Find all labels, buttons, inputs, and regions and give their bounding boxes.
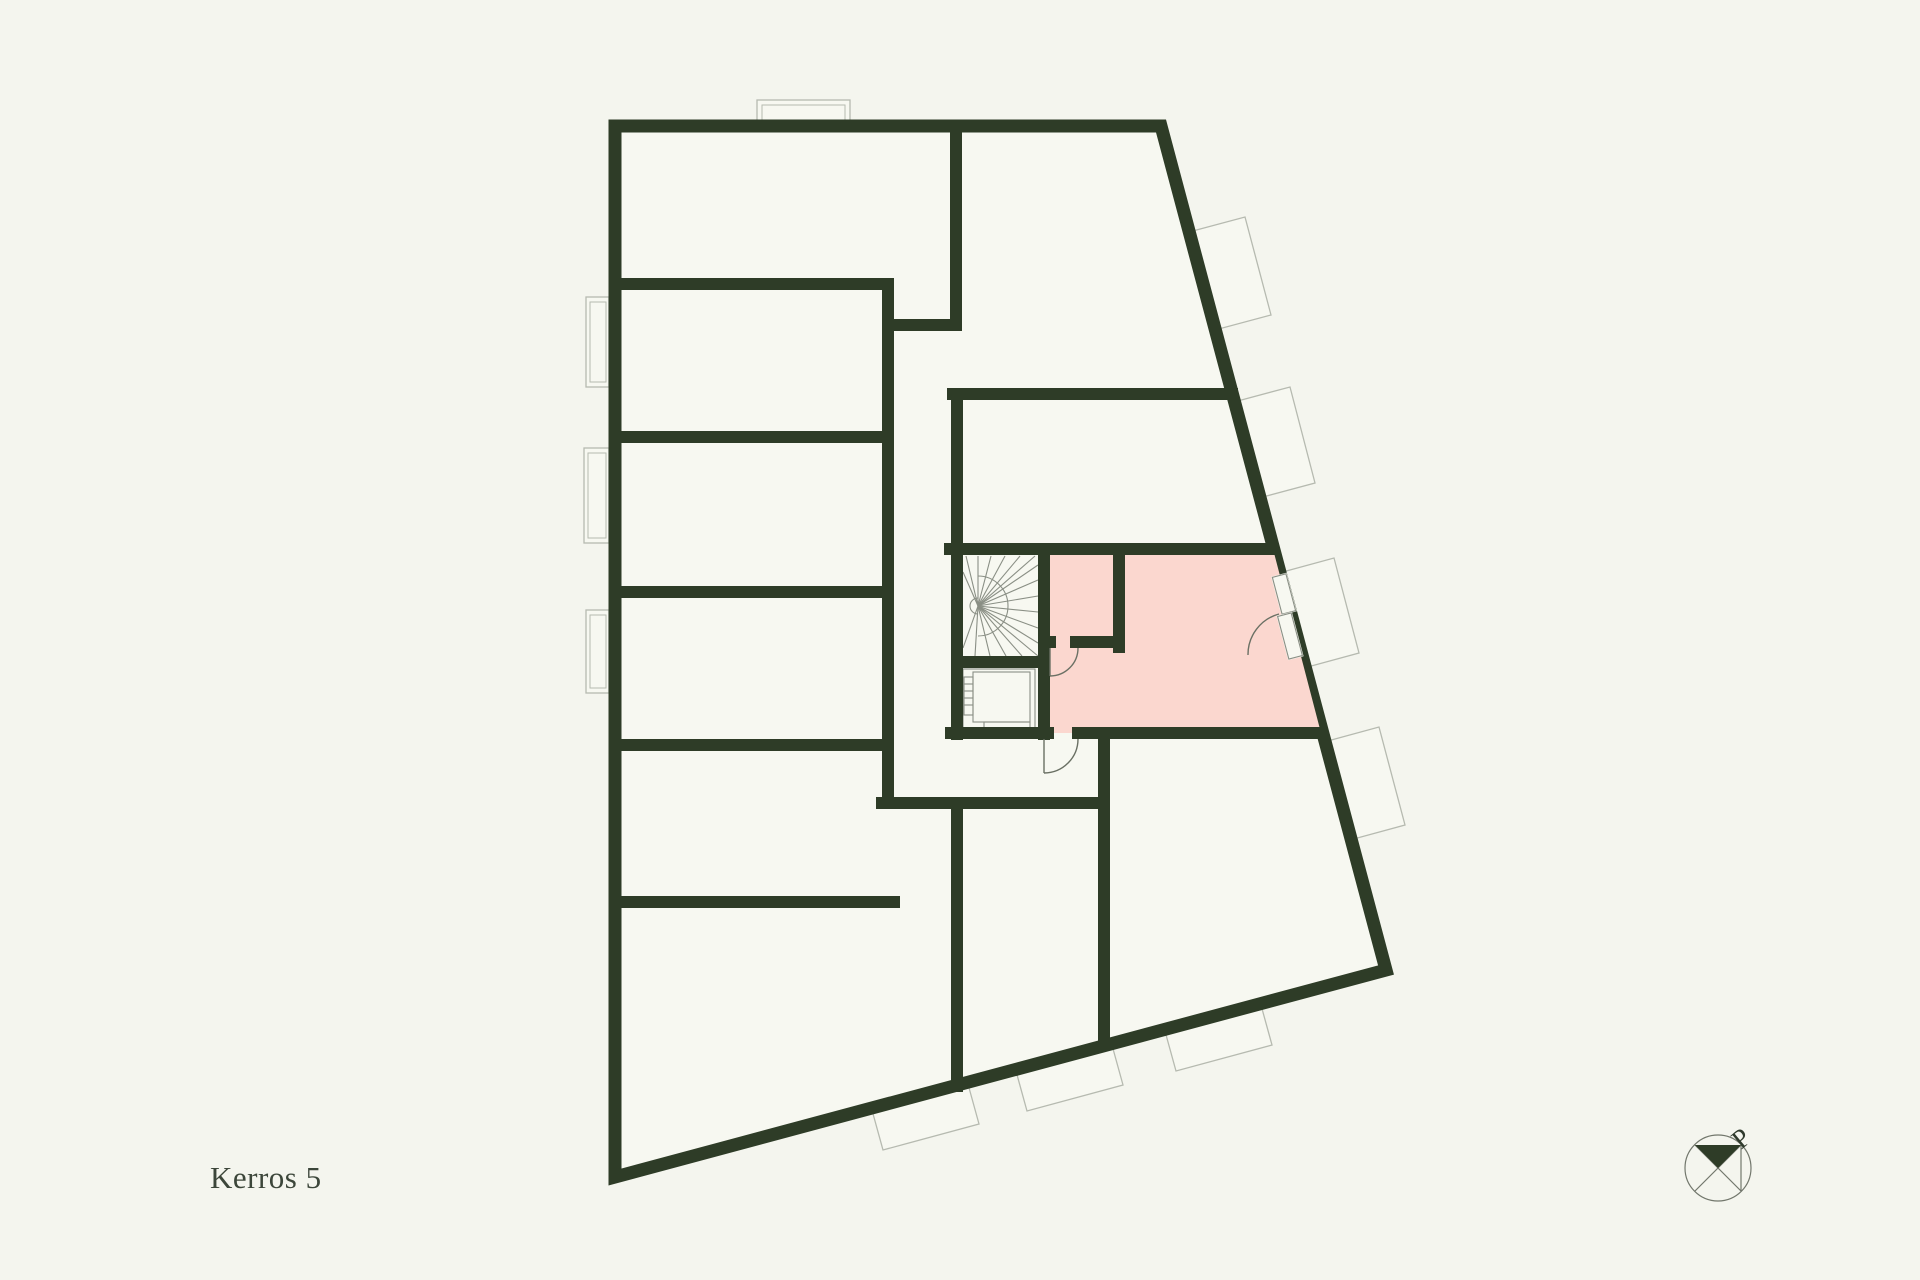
floor-plan: P [0, 0, 1920, 1280]
highlighted-apartment-closet[interactable] [1044, 549, 1119, 644]
balcony-left-2 [584, 448, 609, 543]
floor-plan-canvas: P Kerros 5 [0, 0, 1920, 1280]
north-compass-icon: P [1685, 1122, 1756, 1201]
balcony-left-3 [586, 610, 609, 693]
balcony-left-1 [586, 297, 609, 387]
balcony-top [757, 100, 850, 122]
floor-label: Kerros 5 [210, 1160, 322, 1196]
